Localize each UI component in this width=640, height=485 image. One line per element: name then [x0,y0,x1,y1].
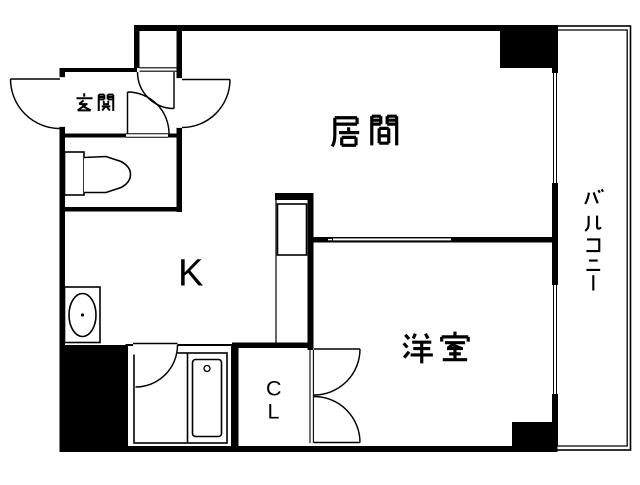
svg-text:L: L [268,400,280,424]
svg-text:K: K [178,253,203,295]
svg-text:C: C [266,377,282,401]
